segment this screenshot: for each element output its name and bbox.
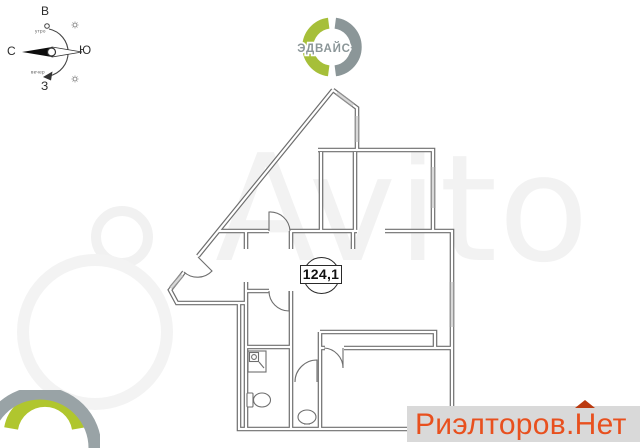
wardrobe-door-arc [269, 291, 289, 311]
toilet-icon [254, 393, 271, 407]
floor-plan-drawing [0, 0, 640, 448]
windows [171, 93, 452, 327]
sink-icon [298, 410, 316, 424]
bedroom-door-arc [324, 348, 343, 368]
corner-logo [0, 390, 100, 448]
entrance-door-arc [184, 257, 212, 277]
realtor-watermark-bar: Риэлторов.Нет [407, 406, 640, 442]
bathroom-door-arc [295, 360, 317, 382]
fixtures [247, 351, 316, 424]
living-room-door-arc [269, 212, 290, 231]
floor-plan-page: Avito В С Ю З утро вечер [0, 0, 640, 448]
area-value: 124,1 [303, 266, 340, 282]
realtor-brand-suffix: Нет [575, 406, 627, 443]
shower-drain-icon [252, 355, 257, 360]
toilet-tank-icon [247, 393, 253, 407]
realtor-brand-prefix: Риэлторов. [415, 408, 575, 441]
area-badge: 124,1 [300, 265, 342, 284]
